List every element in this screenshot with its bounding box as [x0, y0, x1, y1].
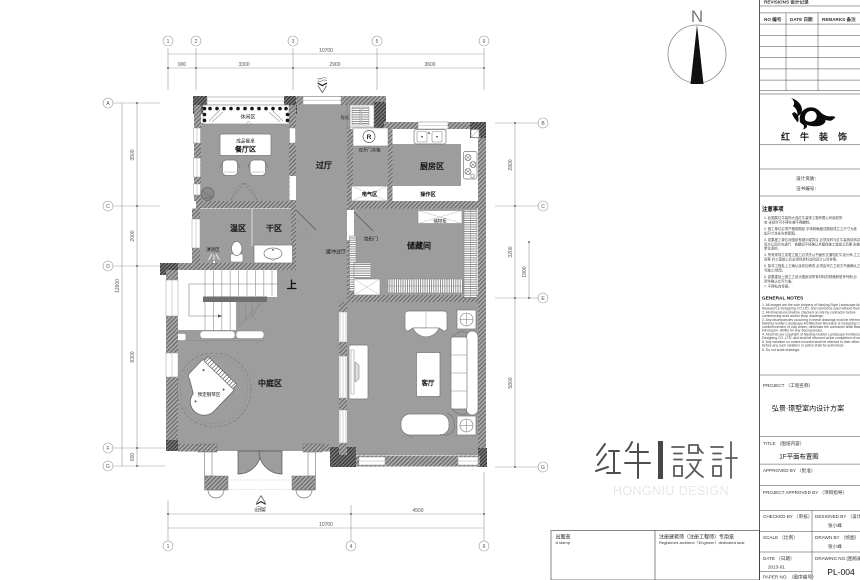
- svg-text:单位承担。: 单位承担。: [764, 246, 781, 251]
- svg-text:中庭区: 中庭区: [258, 378, 282, 388]
- svg-text:储藏间: 储藏间: [406, 241, 431, 251]
- svg-text:PROJECT （工程名称）: PROJECT （工程名称）: [763, 382, 813, 389]
- svg-text:2: 2: [195, 39, 198, 45]
- svg-text:预定钢琴区: 预定钢琴区: [198, 391, 221, 398]
- svg-text:设计资质：: 设计资质：: [796, 175, 819, 182]
- svg-text:张小峰: 张小峰: [828, 543, 842, 550]
- svg-text:8300: 8300: [130, 351, 136, 362]
- svg-text:3200: 3200: [508, 246, 514, 257]
- svg-text:6. 如果建设上报之之设计图纸将所有材料的规格和型号列明 必: 6. 如果建设上报之之设计图纸将所有材料的规格和型号列明 必: [764, 274, 857, 279]
- svg-text:可施工/修改。: 可施工/修改。: [764, 267, 785, 272]
- svg-text:双开门冰箱: 双开门冰箱: [359, 147, 382, 154]
- svg-text:4: 4: [350, 544, 353, 550]
- svg-text:6. Do not scale drawings.: 6. Do not scale drawings.: [762, 348, 800, 352]
- svg-text:3. 如果施工单位对图纸有疑问或异议 必须及时与红牛装饰协商: 3. 如果施工单位对图纸有疑问或异议 必须及时与红牛装饰协商并: [764, 237, 860, 242]
- svg-text:弘景·璟墅室内设计方案: 弘景·璟墅室内设计方案: [772, 404, 844, 413]
- svg-text:C: C: [106, 204, 110, 210]
- svg-text:红牛装饰: 红牛装饰: [781, 131, 857, 142]
- svg-text:2800: 2800: [508, 159, 514, 170]
- svg-text:1900: 1900: [522, 266, 528, 277]
- svg-text:温区: 温区: [230, 223, 246, 233]
- svg-text:GENERAL NOTES: GENERAL NOTES: [762, 296, 804, 302]
- svg-text:双方认同方先进行 依据如不经确认并擅自施工造成之后果 由施工: 双方认同方先进行 依据如不经确认并擅自施工造成之后果 由施工: [764, 241, 860, 246]
- svg-text:SCALE （比例）: SCALE （比例）: [763, 534, 798, 541]
- svg-text:A stamp: A stamp: [556, 540, 571, 545]
- svg-text:NO 编号: NO 编号: [764, 16, 782, 23]
- svg-text:B: B: [541, 121, 545, 127]
- svg-text:隐形门: 隐形门: [364, 236, 378, 243]
- svg-text:过厅: 过厅: [316, 160, 332, 170]
- svg-text:4500: 4500: [412, 508, 423, 514]
- svg-text:900: 900: [178, 62, 187, 68]
- svg-text:3500: 3500: [130, 149, 136, 160]
- svg-text:注意事项: 注意事项: [762, 205, 784, 213]
- svg-text:F: F: [106, 446, 109, 452]
- svg-text:5800: 5800: [508, 377, 514, 388]
- svg-text:C: C: [541, 204, 545, 210]
- svg-text:6200: 6200: [254, 508, 265, 514]
- svg-text:2900: 2900: [329, 62, 340, 68]
- svg-text:10700: 10700: [319, 48, 333, 54]
- svg-text:电气区: 电气区: [362, 190, 378, 198]
- svg-text:R: R: [367, 134, 372, 141]
- svg-text:5. 除非工程处上之确认涂改加修改 必须由甲乙之双方书面确认: 5. 除非工程处上之确认涂改加修改 必须由甲乙之双方书面确认之方: [764, 263, 860, 268]
- svg-text:REVISIONS 设计记录: REVISIONS 设计记录: [764, 0, 809, 5]
- svg-text:10700: 10700: [319, 522, 333, 528]
- svg-text:干区: 干区: [266, 224, 282, 233]
- svg-text:PL-004: PL-004: [827, 567, 855, 577]
- svg-text:休闲区: 休闲区: [240, 114, 255, 121]
- svg-text:证书编号：: 证书编号：: [796, 185, 819, 192]
- svg-text:Registered architect（Engineer）: Registered architect（Engineer）dedicated …: [659, 540, 744, 545]
- svg-text:2. 施工单位必须严格按图纸 字体精确度试图纸成立之尺寸为准: 2. 施工单位必须严格按图纸 字体精确度试图纸成立之尺寸为准: [764, 226, 857, 231]
- svg-text:CHECKED BY （审核）: CHECKED BY （审核）: [763, 513, 812, 520]
- svg-text:HONGNIU DESIGN: HONGNIU DESIGN: [613, 484, 729, 498]
- svg-text:DRAWN BY （绘图）: DRAWN BY （绘图）: [815, 534, 859, 541]
- svg-text:如尺寸涂未先参配图。: 如尺寸涂未先参配图。: [764, 230, 798, 235]
- svg-text:操作区: 操作区: [420, 190, 436, 198]
- svg-text:张小峰: 张小峰: [828, 522, 842, 529]
- svg-text:A: A: [106, 101, 110, 107]
- svg-text:7. 不得私自变更。: 7. 不得私自变更。: [764, 284, 792, 289]
- svg-text:D: D: [106, 264, 110, 270]
- svg-text:2000: 2000: [130, 230, 136, 241]
- svg-text:2013-01: 2013-01: [768, 565, 785, 570]
- svg-text:DATE （日期）: DATE （日期）: [763, 556, 795, 562]
- svg-text:3600: 3600: [424, 62, 435, 68]
- svg-text:有 未经许可不得抄袭不得翻制。: 有 未经许可不得抄袭不得翻制。: [764, 219, 812, 224]
- svg-text:缓冲过厅: 缓冲过厅: [326, 249, 346, 256]
- svg-text:6: 6: [483, 39, 486, 45]
- svg-text:1. 此图属红牛装饰大连红牛装饰工程有限公司版权所: 1. 此图属红牛装饰大连红牛装饰工程有限公司版权所: [764, 215, 843, 220]
- svg-text:DATE 日期: DATE 日期: [790, 16, 813, 23]
- svg-text:PROJECT APPROVED BY （项目指导）: PROJECT APPROVED BY （项目指导）: [763, 489, 847, 496]
- svg-text:5: 5: [376, 39, 379, 45]
- svg-text:PAPER NO. （图序编号）: PAPER NO. （图序编号）: [763, 574, 817, 580]
- svg-text:客厅: 客厅: [421, 378, 436, 387]
- svg-text:6: 6: [483, 544, 486, 550]
- svg-text:餐厅区: 餐厅区: [234, 145, 256, 154]
- svg-text:1: 1: [167, 39, 170, 45]
- svg-text:TITLE （图纸内容）: TITLE （图纸内容）: [763, 440, 804, 447]
- svg-text:3: 3: [292, 39, 295, 45]
- svg-text:厨房区: 厨房区: [420, 161, 444, 171]
- svg-text:N: N: [691, 7, 703, 26]
- svg-text:REMARKS 备注: REMARKS 备注: [822, 16, 856, 23]
- svg-text:4. 所有现场之变更之施工必须先以书面形式通知红牛设计师 之: 4. 所有现场之变更之施工必须先以书面形式通知红牛设计师 之工作内: [764, 252, 860, 257]
- svg-text:DESIGNED BY （设计）: DESIGNED BY （设计）: [815, 513, 860, 520]
- svg-text:成品餐桌: 成品餐桌: [236, 138, 255, 145]
- svg-text:APPROVED BY （批准）: APPROVED BY （批准）: [763, 467, 816, 474]
- svg-text:1: 1: [167, 544, 170, 550]
- svg-text:淋浴区: 淋浴区: [206, 246, 220, 253]
- svg-text:DRAWING NO.(图纸编号): DRAWING NO.(图纸编号): [815, 555, 860, 562]
- svg-text:须作确认北可为准。: 须作确认北可为准。: [764, 278, 795, 283]
- svg-text:容等 并工程竣工后必须将资料交回设计公司存案。: 容等 并工程竣工后必须将资料交回设计公司存案。: [764, 256, 840, 261]
- svg-text:12600: 12600: [115, 279, 121, 293]
- svg-text:鞋柜: 鞋柜: [341, 114, 349, 121]
- svg-text:E: E: [541, 296, 545, 302]
- svg-text:3300: 3300: [238, 62, 249, 68]
- svg-text:储物柜: 储物柜: [433, 218, 447, 225]
- svg-text:G: G: [541, 465, 545, 471]
- svg-text:600: 600: [130, 453, 136, 462]
- svg-text:G: G: [106, 464, 110, 470]
- svg-text:1F平面布置图: 1F平面布置图: [779, 452, 818, 461]
